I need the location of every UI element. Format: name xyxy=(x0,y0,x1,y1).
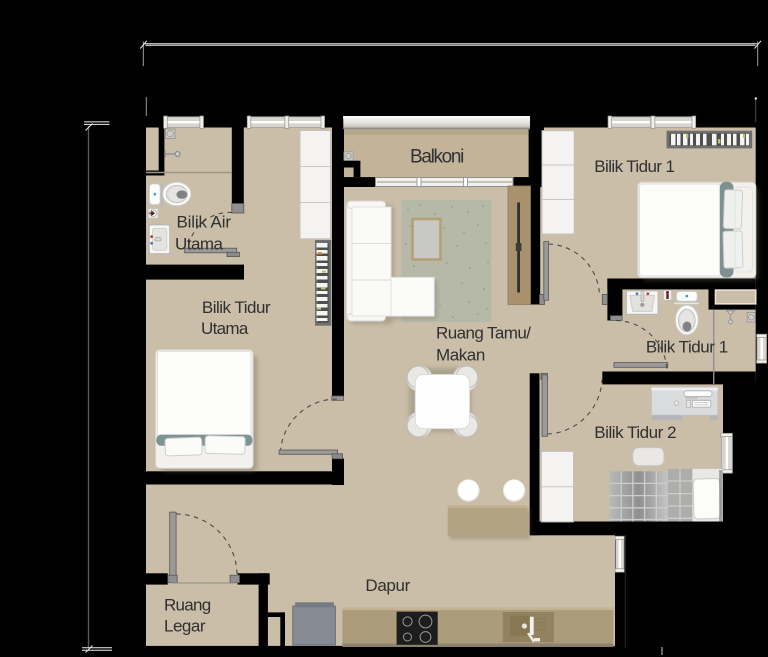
svg-text:Bilik Tidur 1: Bilik Tidur 1 xyxy=(594,157,675,176)
svg-text:Bilik Tidur 2: Bilik Tidur 2 xyxy=(594,423,676,442)
svg-text:Bilik Tidur: Bilik Tidur xyxy=(202,298,271,317)
svg-text:Bilik Tidur 1: Bilik Tidur 1 xyxy=(646,337,728,356)
svg-text:Dapur: Dapur xyxy=(365,576,410,595)
svg-text:Utama: Utama xyxy=(175,235,224,254)
svg-text:Ruang: Ruang xyxy=(164,596,211,615)
svg-text:Balkoni: Balkoni xyxy=(410,147,464,168)
svg-text:Makan: Makan xyxy=(436,345,485,364)
svg-text:Utama: Utama xyxy=(201,319,249,338)
svg-text:Ruang Tamu/: Ruang Tamu/ xyxy=(436,323,531,342)
svg-text:Legar: Legar xyxy=(164,617,206,636)
svg-text:Bilik Air: Bilik Air xyxy=(177,213,232,232)
